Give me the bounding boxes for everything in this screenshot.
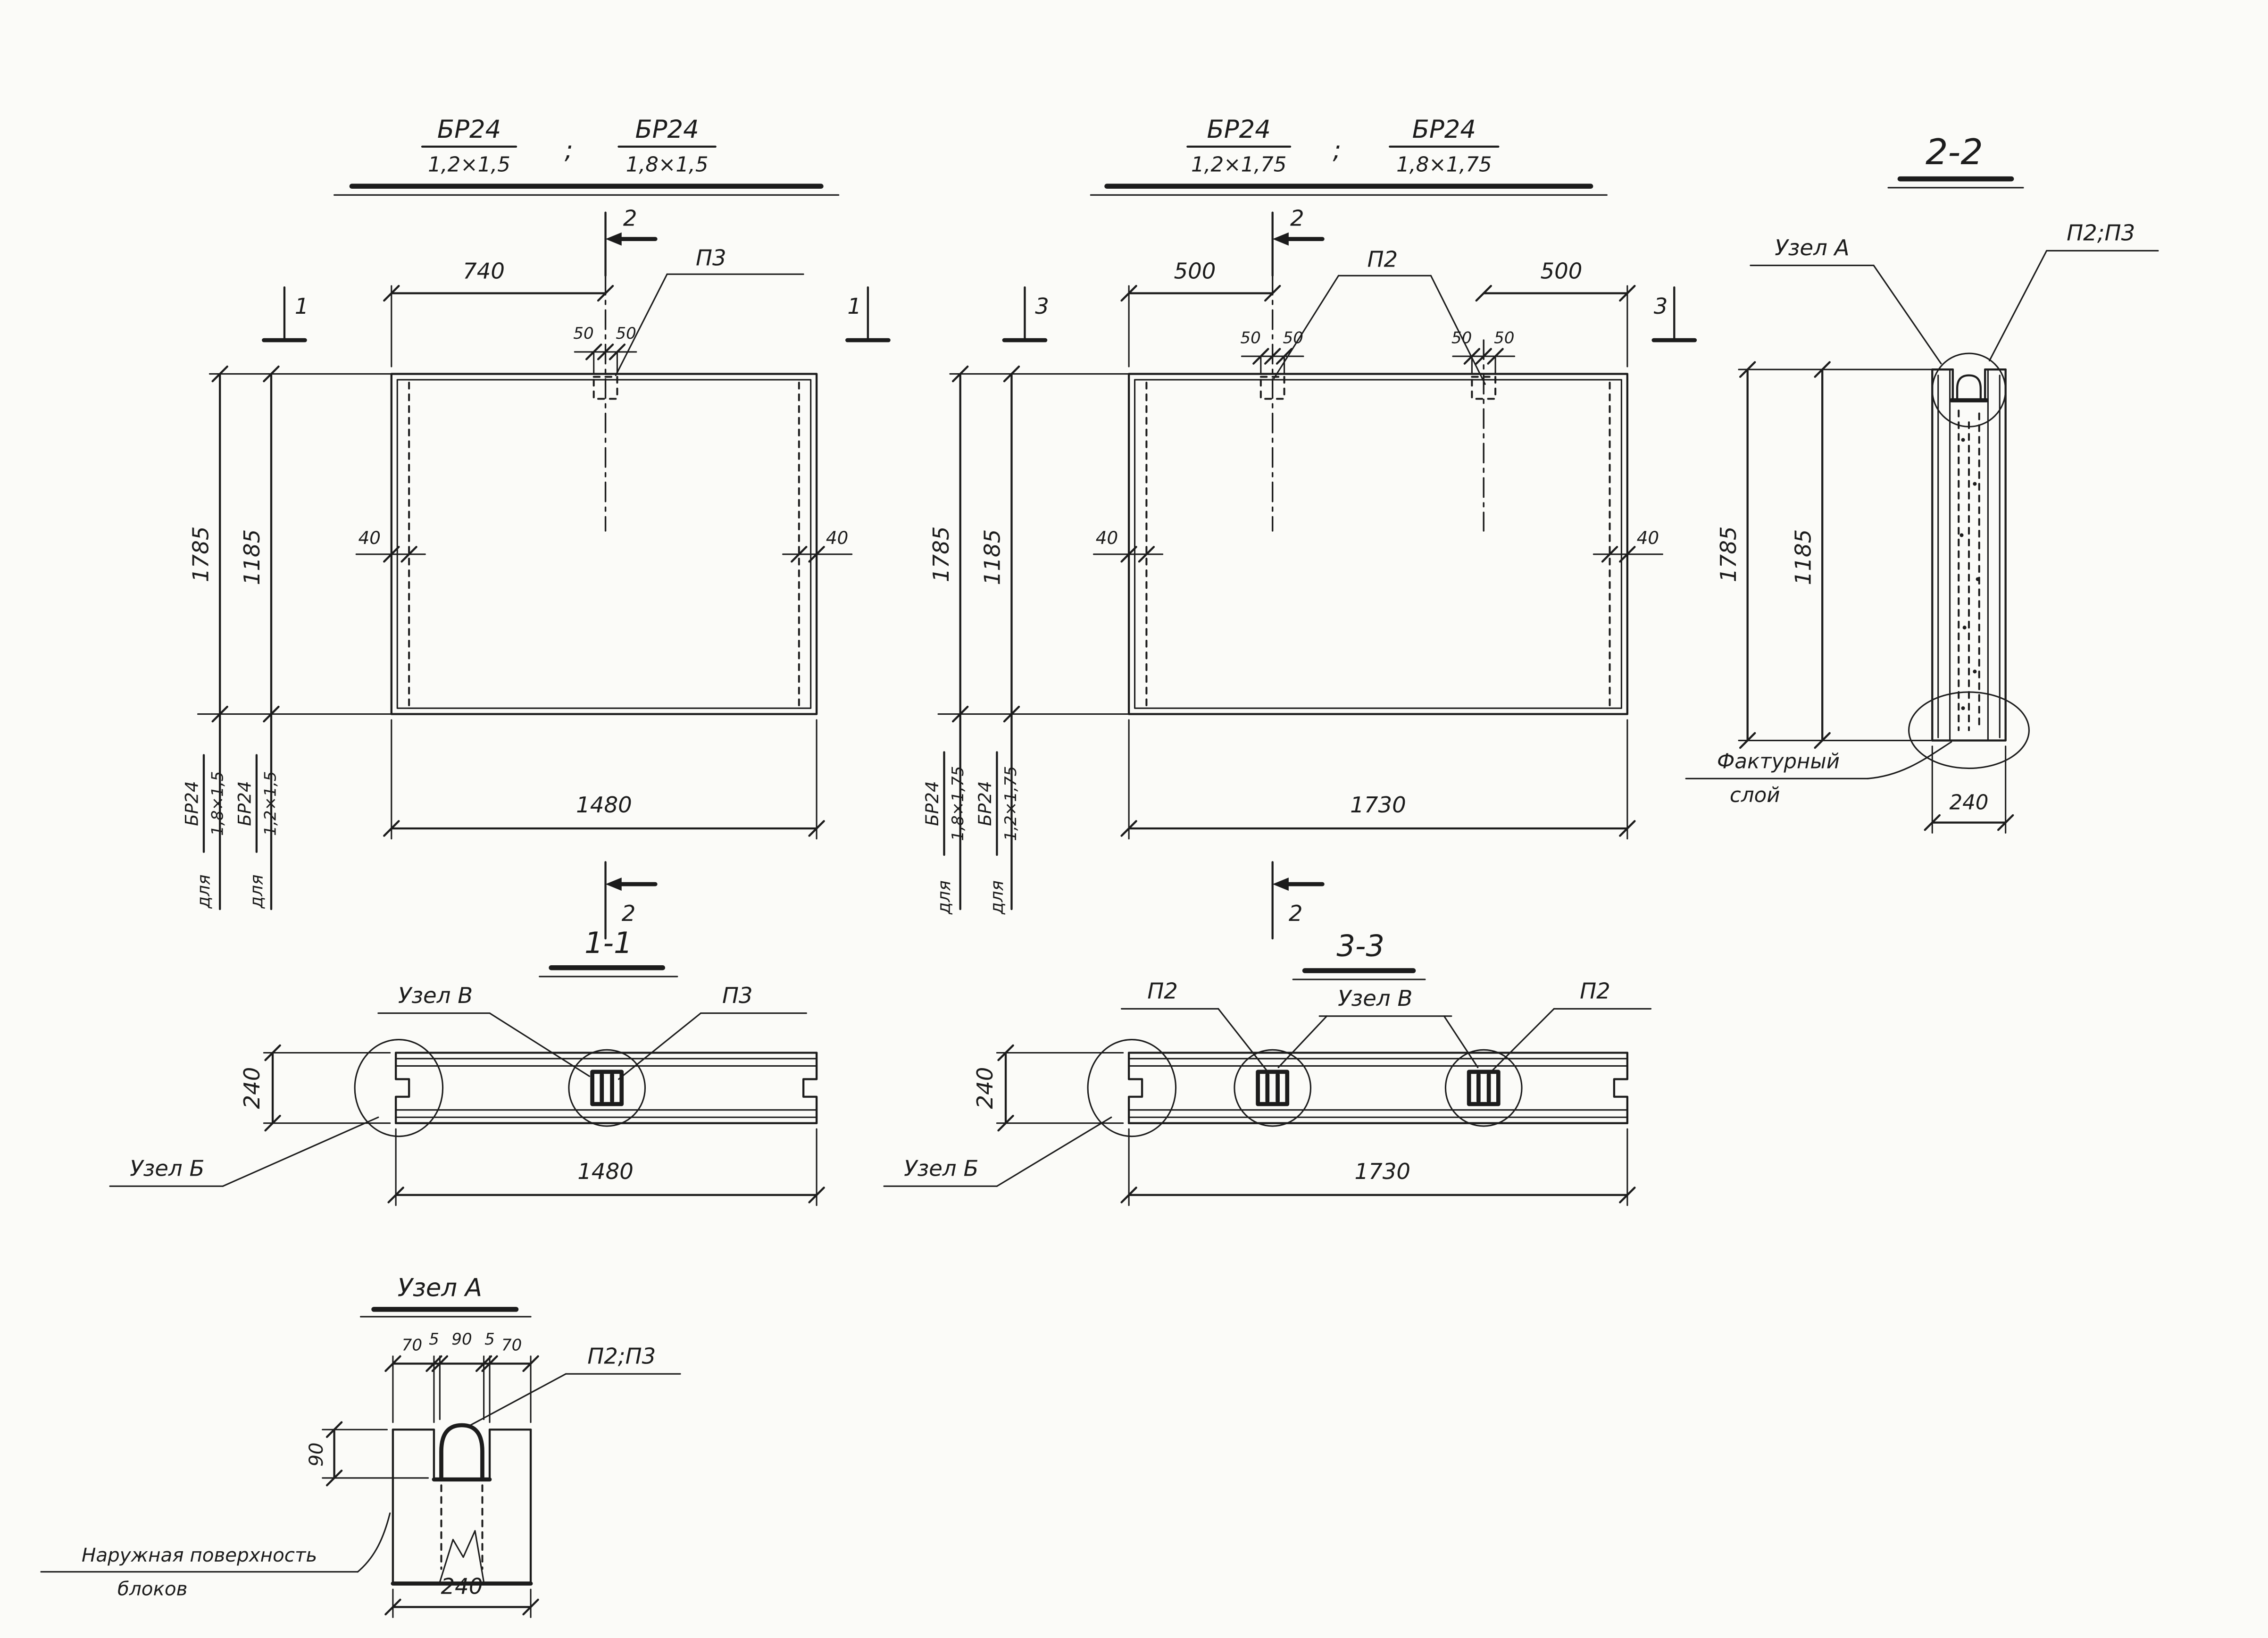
dim-1730: 1730 — [1122, 1129, 1635, 1205]
dim-1785: 1785 — [188, 526, 213, 582]
dim-40-value: 40 — [1637, 527, 1659, 548]
label-p2: П2 — [1580, 978, 1610, 1004]
leader-p2: П2 — [1274, 247, 1485, 384]
section-2-2-label: 2-2 — [1926, 132, 1983, 173]
for-block-inner: БР24 1,2×1,5 для — [234, 755, 280, 909]
dim-240: 240 — [1925, 746, 2013, 833]
label-surface-2: блоков — [117, 1577, 187, 1600]
leader-node-v: Узел В — [1278, 986, 1478, 1068]
for-den: 1,2×1,5 — [261, 771, 280, 836]
dim-50-left: 50 — [573, 324, 593, 343]
embed-p2-right — [1472, 340, 1495, 531]
dim-740-value: 740 — [463, 259, 505, 284]
label-p2: П2 — [1367, 247, 1398, 272]
node-a-detail: Узел А 70 5 90 5 70 П2;П3 — [41, 1273, 680, 1617]
plan-body — [1129, 1053, 1627, 1123]
embed-p2-left — [1261, 276, 1284, 531]
label-p2-p3: П2;П3 — [2067, 220, 2135, 246]
leader-p2-p3: П2;П3 — [1989, 220, 2158, 361]
dim-1785: 1785 — [1716, 526, 1741, 582]
dim-240: 240 — [239, 1045, 390, 1130]
detail-bubble-node-v — [1445, 1050, 1522, 1126]
cut-mark-1-label: 1 — [295, 293, 309, 319]
dim-240-value: 240 — [239, 1067, 265, 1109]
embed-p3-hidden — [594, 276, 617, 531]
label-node-b: Узел Б — [904, 1156, 978, 1181]
section-2-2: Узел А П2;П3 — [1686, 220, 2158, 833]
dim-5: 5 — [429, 1330, 439, 1349]
dim-50: 50 — [1240, 328, 1260, 347]
dim-1730: 1730 — [1122, 720, 1635, 839]
dim-240-value: 240 — [1949, 791, 1988, 815]
dim-1480-value: 1480 — [576, 792, 632, 818]
label-node-v: Узел В — [398, 983, 473, 1008]
title-section-3-3: 3-3 — [1293, 928, 1425, 979]
dim-1480-value: 1480 — [577, 1159, 634, 1184]
dim-40-value: 40 — [826, 527, 848, 548]
loop-embed — [441, 1425, 482, 1478]
for-den: 1,2×1,75 — [1001, 766, 1020, 841]
label-texture-1: Фактурный — [1717, 750, 1840, 774]
dim-500-value: 500 — [1174, 259, 1216, 284]
cut-mark-2-top: 2 — [606, 206, 656, 276]
slot-profile — [393, 1425, 531, 1584]
label-surface-1: Наружная поверхность — [82, 1544, 317, 1566]
plan-body — [396, 1053, 817, 1123]
label-node-v: Узел В — [1338, 986, 1412, 1011]
cut-mark-3-label: 3 — [1654, 293, 1668, 319]
cut-mark-2-label: 2 — [623, 206, 637, 231]
leader-p2-p3: П2;П3 — [467, 1343, 680, 1427]
label-p3: П3 — [722, 983, 753, 1008]
title-fraction2-numerator: БР24 — [635, 115, 699, 144]
cut-mark-2-bottom: 2 — [1273, 862, 1323, 938]
dim-240: 240 — [972, 1045, 1123, 1130]
leader-node-a: Узел А — [1751, 235, 1941, 364]
leader-p3: П3 — [616, 245, 803, 376]
section-3-3-label: 3-3 — [1336, 928, 1384, 963]
label-node-b: Узел Б — [130, 1156, 204, 1181]
dim-500-left: 500 — [1122, 259, 1280, 367]
title-left-block: БР24 1,2×1,5 ; БР24 1,8×1,5 — [334, 115, 839, 195]
for-num: БР24 — [182, 781, 202, 826]
cut-mark-1-label: 1 — [847, 293, 861, 319]
cut-mark-3-right: 3 — [1654, 287, 1695, 340]
column-body — [1932, 369, 2005, 740]
node-a-label: Узел А — [398, 1273, 482, 1302]
embed-p2-symbol — [1258, 1072, 1287, 1104]
for-den: 1,8×1,5 — [208, 771, 227, 836]
section-1-1: 1-1 Узел В П3 — [110, 926, 824, 1205]
dim-1185: 1185 — [239, 529, 265, 585]
dim-70: 70 — [501, 1336, 522, 1354]
elevation-left: 50 50 740 2 П3 1 — [182, 206, 889, 938]
for-num: БР24 — [975, 781, 995, 826]
title-fraction1-denominator: 1,2×1,5 — [428, 153, 510, 177]
embed-p2-symbol — [1469, 1072, 1498, 1104]
label-p3: П3 — [696, 245, 726, 271]
dim-240: 240 — [385, 1573, 538, 1617]
leader-outer-surface: Наружная поверхность блоков — [41, 1513, 390, 1600]
dim-1785: 1785 — [928, 526, 954, 582]
title-fraction2-denominator: 1,8×1,5 — [626, 153, 709, 177]
dim-1480: 1480 — [384, 720, 824, 839]
elevation-middle: 50 50 50 50 500 500 2 — [922, 206, 1695, 938]
title-fraction1-numerator: БР24 — [437, 115, 501, 144]
leader-node-b: Узел Б — [110, 1117, 378, 1186]
dim-50: 50 — [1494, 328, 1514, 347]
leader-node-v: Узел В — [378, 983, 590, 1076]
section-1-1-label: 1-1 — [584, 926, 633, 960]
cut-mark-3-label: 3 — [1035, 293, 1049, 319]
dim-90-value: 90 — [305, 1442, 327, 1466]
dim-240-value: 240 — [972, 1067, 998, 1109]
cut-mark-2-label: 2 — [1290, 206, 1304, 231]
for-word: для — [986, 880, 1007, 915]
cut-mark-2-top: 2 — [1273, 206, 1323, 276]
cut-mark-1-right: 1 — [847, 287, 888, 340]
dim-1480: 1480 — [389, 1129, 824, 1205]
embed-p3-symbol — [592, 1072, 622, 1104]
detail-bubble-node-v — [569, 1050, 645, 1126]
panel-outline — [1129, 374, 1627, 714]
cut-mark-3-left: 3 — [1004, 287, 1049, 340]
leader-p3: П3 — [619, 983, 807, 1079]
title-middle-block: БР24 1,2×1,75 ; БР24 1,8×1,75 — [1091, 115, 1607, 195]
for-num: БР24 — [922, 781, 942, 826]
dim-1185: 1185 — [980, 529, 1005, 585]
title-section-2-2: 2-2 — [1888, 132, 2023, 188]
dim-70: 70 — [402, 1336, 422, 1354]
for-block-inner: БР24 1,2×1,75 для — [975, 752, 1020, 915]
for-den: 1,8×1,75 — [949, 766, 967, 841]
dim-90-side: 90 — [305, 1422, 428, 1486]
title-section-1-1: 1-1 — [540, 926, 677, 977]
dim-40-value: 40 — [358, 527, 380, 548]
dim-240-value: 240 — [441, 1573, 483, 1599]
panel-outline — [392, 374, 817, 714]
dim-1730-value: 1730 — [1350, 792, 1406, 818]
section-3-3: 3-3 П2 Узел В П2 — [884, 928, 1651, 1205]
label-texture-2: слой — [1730, 784, 1780, 807]
for-word: для — [193, 875, 214, 909]
leader-texture-layer: Фактурный слой — [1686, 742, 1951, 807]
title-fraction2-numerator: БР24 — [1412, 115, 1476, 144]
cut-mark-2-label: 2 — [622, 901, 636, 926]
dim-1730-value: 1730 — [1354, 1159, 1410, 1184]
cut-mark-2-label: 2 — [1289, 901, 1303, 926]
leader-node-b: Узел Б — [884, 1117, 1111, 1186]
label-p2-p3: П2;П3 — [587, 1343, 656, 1369]
dim-5: 5 — [484, 1330, 495, 1349]
title-node-a: Узел А — [361, 1273, 531, 1317]
for-word: для — [934, 880, 954, 915]
dim-heights: 1785 1185 — [1716, 362, 1932, 748]
blueprint-sheet: БР24 1,2×1,5 ; БР24 1,8×1,5 БР24 1,2×1,7… — [0, 0, 2268, 1638]
title-fraction2-denominator: 1,8×1,75 — [1396, 153, 1492, 177]
detail-bubble-node-a — [1932, 353, 2005, 426]
leader-p2-left: П2 — [1122, 978, 1267, 1070]
for-word: для — [246, 875, 267, 909]
for-num: БР24 — [234, 781, 255, 826]
title-fraction1-numerator: БР24 — [1207, 115, 1271, 144]
title-separator: ; — [1333, 136, 1342, 165]
dim-90: 90 — [451, 1330, 472, 1349]
label-p2: П2 — [1147, 978, 1178, 1004]
dim-740: 740 — [384, 259, 613, 367]
detail-bubble-node-v — [1234, 1050, 1311, 1126]
title-separator: ; — [565, 136, 573, 165]
title-fraction1-denominator: 1,2×1,75 — [1191, 153, 1286, 177]
cut-mark-1-left: 1 — [264, 287, 309, 340]
detail-bubble-node-b — [1088, 1040, 1176, 1137]
dim-40-value: 40 — [1096, 527, 1118, 548]
dim-1185: 1185 — [1790, 529, 1816, 585]
label-node-a: Узел А — [1775, 235, 1849, 260]
dim-500-value: 500 — [1540, 259, 1582, 284]
dim-top-chain: 70 5 90 5 70 — [385, 1330, 538, 1422]
